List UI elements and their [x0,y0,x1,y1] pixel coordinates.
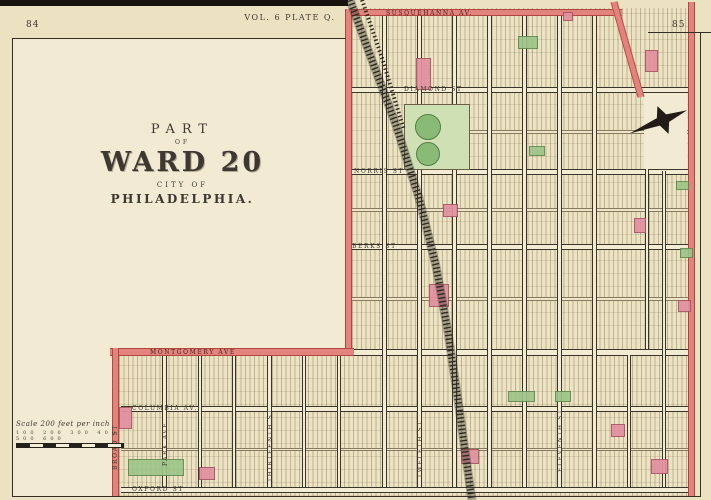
plate-border [12,496,701,497]
scale-caption: Scale 200 feet per inch [16,420,136,428]
brick-building-parcel [443,204,458,217]
green-parcel [676,181,689,190]
brick-building-parcel [651,459,668,474]
plate-border [12,38,13,497]
brick-building-parcel [678,300,691,312]
street-horizontal [350,244,689,250]
street-label: PARK AVE [162,422,169,466]
street-horizontal [350,87,689,93]
green-parcel [128,459,184,476]
green-parcel [508,391,535,402]
street-vertical [627,355,631,487]
title-part: PART [95,122,270,137]
green-parcel [529,146,545,156]
reservoir-basin [416,142,440,166]
brick-building-parcel [461,449,479,464]
title-ward: WARD 20 [95,149,270,177]
street-horizontal [350,208,689,212]
map-title-block: PART OF WARD 20 CITY OF PHILADELPHIA. [95,122,270,206]
street-horizontal [121,448,689,451]
street-vertical [302,355,306,487]
title-of: OF [95,139,270,146]
street-label: NORRIS ST [354,168,404,175]
brick-building-parcel [199,467,215,480]
brick-building-parcel [611,424,625,437]
street-label: OXFORD ST [132,486,184,493]
brick-building-parcel [563,12,573,21]
street-label: MONTGOMERY AVE [150,349,236,356]
street-vertical [592,16,597,487]
street-label: DIAMOND ST [404,86,463,93]
plate-title: VOL. 6 PLATE Q. [225,13,355,22]
reservoir-basin [415,114,441,140]
street-vertical [382,16,387,487]
street-vertical [232,355,236,487]
street-vertical [487,16,492,487]
street-vertical [337,355,341,487]
page-edge-shadow [0,0,348,6]
title-philadelphia: PHILADELPHIA. [95,192,270,206]
plate-border [648,32,711,33]
ward-boundary-street [345,9,352,356]
street-label: BERKS ST [352,243,397,250]
street-label: ELEVENTH ST [557,408,564,472]
green-parcel [555,391,571,402]
street-horizontal [121,406,689,412]
scale-tick-labels: 100 200 300 400 500 600 [16,430,136,442]
brick-building-parcel [429,284,449,307]
green-parcel [518,36,538,49]
atlas-plate: DIAMOND STNORRIS STBERKS STCOLUMBIA AV.O… [0,0,711,500]
scale-bar [16,443,124,448]
street-horizontal [350,297,689,301]
street-vertical [662,171,666,487]
plate-border [700,32,701,497]
street-label: THIRTEENTH ST [267,408,274,482]
green-parcel [680,248,693,258]
title-cityof: CITY OF [95,181,270,189]
street-horizontal [352,349,689,356]
page-number-left: 84 [26,20,39,30]
scale-bar-block: Scale 200 feet per inch 100 200 300 400 … [16,420,136,448]
street-label: SUSQUEHANNA AV. [386,10,473,17]
street-label: COLUMBIA AV. [132,405,198,412]
brick-building-parcel [645,50,658,72]
plate-border [12,38,346,39]
street-label: TWELFTH ST [417,420,424,478]
page-number-right: 85 [672,20,685,30]
open-ground [644,93,687,169]
street-horizontal [121,487,689,493]
brick-building-parcel [634,218,646,233]
street-vertical [522,16,527,487]
